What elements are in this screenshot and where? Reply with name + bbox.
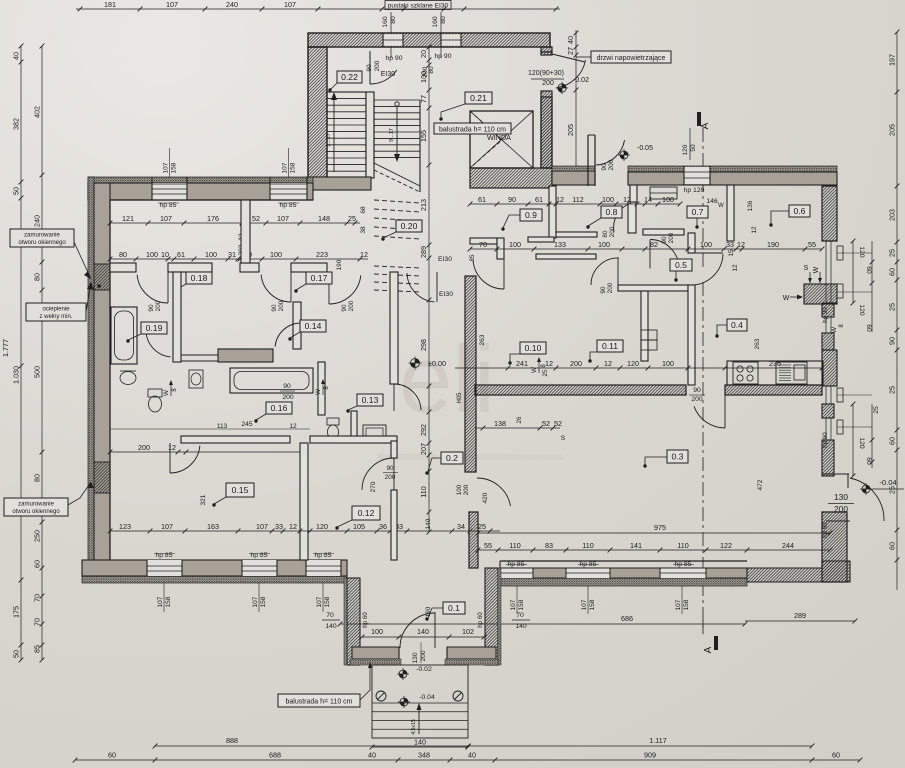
- svg-text:70: 70: [326, 612, 334, 619]
- svg-text:12: 12: [360, 250, 368, 259]
- svg-text:348: 348: [418, 751, 430, 760]
- svg-text:1.117: 1.117: [649, 736, 666, 745]
- svg-text:zamurowanie: zamurowanie: [24, 233, 60, 239]
- svg-text:33: 33: [275, 522, 283, 531]
- svg-text:0.14: 0.14: [305, 321, 322, 331]
- svg-text:80: 80: [33, 273, 42, 281]
- svg-text:0.13: 0.13: [362, 395, 379, 405]
- svg-text:25: 25: [888, 486, 897, 494]
- svg-text:0.15: 0.15: [232, 485, 249, 495]
- svg-text:S: S: [804, 265, 809, 272]
- svg-text:60: 60: [108, 751, 116, 760]
- svg-text:158: 158: [165, 596, 172, 607]
- svg-text:200: 200: [463, 484, 470, 495]
- svg-text:0.16: 0.16: [271, 403, 288, 413]
- svg-text:W: W: [813, 266, 820, 273]
- svg-text:S: S: [561, 435, 566, 442]
- svg-text:0.9: 0.9: [525, 210, 537, 220]
- svg-text:90: 90: [386, 465, 394, 472]
- svg-text:hp 85: hp 85: [314, 552, 331, 559]
- svg-text:zamurowanie: zamurowanie: [18, 502, 54, 508]
- svg-text:hp 90: hp 90: [822, 307, 829, 323]
- svg-text:50: 50: [690, 144, 697, 152]
- svg-text:0.3: 0.3: [672, 452, 684, 462]
- svg-text:100: 100: [371, 627, 383, 636]
- svg-text:250: 250: [33, 530, 42, 542]
- svg-text:26: 26: [516, 416, 523, 423]
- svg-text:200: 200: [570, 359, 582, 368]
- svg-text:50: 50: [12, 650, 21, 658]
- svg-text:107: 107: [581, 599, 588, 610]
- svg-text:200: 200: [668, 232, 675, 243]
- svg-text:9...17: 9...17: [389, 128, 395, 142]
- svg-text:107: 107: [256, 522, 268, 531]
- svg-text:70: 70: [516, 612, 524, 619]
- svg-text:WINDA: WINDA: [487, 133, 511, 142]
- svg-text:±0.00: ±0.00: [428, 359, 446, 368]
- svg-text:200: 200: [607, 282, 614, 293]
- svg-text:200: 200: [542, 80, 554, 87]
- svg-text:130: 130: [834, 492, 848, 502]
- svg-text:158: 158: [260, 596, 267, 607]
- svg-text:190: 190: [767, 240, 779, 249]
- svg-text:33: 33: [726, 240, 734, 249]
- svg-text:123: 123: [119, 522, 131, 531]
- svg-text:EI30: EI30: [439, 291, 453, 298]
- svg-text:100: 100: [509, 240, 521, 249]
- svg-text:107: 107: [284, 0, 296, 9]
- svg-text:0.2: 0.2: [446, 453, 458, 463]
- svg-text:223: 223: [316, 250, 328, 259]
- svg-text:100: 100: [456, 484, 463, 495]
- svg-text:40: 40: [566, 36, 575, 44]
- svg-text:-0.02: -0.02: [573, 77, 589, 84]
- svg-text:0.22: 0.22: [341, 72, 358, 82]
- svg-text:107: 107: [157, 596, 164, 607]
- svg-text:289: 289: [419, 246, 428, 258]
- svg-text:60: 60: [865, 266, 872, 274]
- svg-text:100: 100: [270, 250, 282, 259]
- svg-text:200: 200: [155, 300, 162, 311]
- svg-text:-0.04: -0.04: [879, 478, 896, 487]
- svg-text:0.21: 0.21: [470, 93, 487, 103]
- svg-text:25: 25: [888, 303, 897, 311]
- svg-text:0.1: 0.1: [448, 603, 460, 613]
- svg-text:70: 70: [33, 594, 42, 602]
- svg-text:50: 50: [12, 187, 21, 195]
- svg-text:drzwi napowietrzające: drzwi napowietrzające: [597, 55, 666, 62]
- svg-text:60: 60: [888, 268, 897, 276]
- svg-text:W: W: [718, 203, 724, 209]
- svg-text:100: 100: [662, 359, 674, 368]
- svg-text:190: 190: [425, 606, 432, 617]
- svg-text:H05: H05: [457, 392, 463, 404]
- svg-text:20: 20: [419, 50, 428, 58]
- svg-text:61: 61: [177, 250, 185, 259]
- svg-text:121: 121: [122, 214, 134, 223]
- svg-text:12: 12: [623, 195, 631, 204]
- svg-text:60: 60: [865, 324, 872, 332]
- svg-text:136: 136: [747, 200, 754, 211]
- svg-text:107: 107: [161, 522, 173, 531]
- svg-text:200: 200: [691, 396, 703, 403]
- svg-text:1.777: 1.777: [1, 339, 10, 357]
- svg-text:0.8: 0.8: [606, 207, 618, 217]
- svg-text:z wełny min.: z wełny min.: [39, 314, 72, 320]
- svg-text:EI30: EI30: [438, 256, 452, 263]
- svg-text:A: A: [700, 122, 711, 129]
- svg-text:60: 60: [888, 437, 897, 445]
- svg-text:68: 68: [360, 206, 367, 214]
- svg-text:25: 25: [888, 249, 897, 257]
- svg-text:90: 90: [661, 236, 668, 244]
- svg-text:205: 205: [888, 124, 897, 136]
- svg-text:107: 107: [316, 596, 323, 607]
- svg-text:120: 120: [858, 246, 865, 258]
- svg-text:40: 40: [368, 751, 376, 760]
- svg-text:hp 90: hp 90: [385, 55, 402, 62]
- svg-text:200: 200: [609, 226, 616, 237]
- svg-text:hp 85: hp 85: [155, 552, 172, 559]
- svg-text:15: 15: [728, 249, 735, 257]
- svg-text:70: 70: [479, 240, 487, 249]
- svg-text:140: 140: [417, 627, 429, 636]
- svg-text:85: 85: [33, 645, 42, 653]
- svg-text:60: 60: [888, 542, 897, 550]
- svg-text:W: W: [831, 326, 838, 333]
- svg-text:263: 263: [479, 334, 486, 345]
- svg-text:90: 90: [600, 286, 607, 294]
- svg-text:107: 107: [282, 162, 289, 173]
- svg-text:158: 158: [518, 599, 525, 610]
- svg-text:190: 190: [336, 259, 343, 270]
- svg-text:12: 12: [737, 240, 745, 249]
- svg-text:12: 12: [604, 359, 612, 368]
- svg-text:12: 12: [732, 264, 739, 272]
- svg-text:140: 140: [425, 518, 432, 529]
- svg-text:236: 236: [769, 359, 781, 368]
- svg-text:107: 107: [510, 599, 517, 610]
- svg-text:pustaki szklane EI30: pustaki szklane EI30: [388, 3, 449, 10]
- svg-text:0.5: 0.5: [675, 260, 687, 270]
- svg-text:12: 12: [751, 226, 758, 234]
- svg-text:0.18: 0.18: [191, 273, 208, 283]
- svg-text:120: 120: [316, 522, 328, 531]
- svg-text:40: 40: [12, 52, 21, 60]
- svg-text:205: 205: [566, 124, 575, 136]
- svg-text:240: 240: [33, 215, 42, 227]
- svg-text:200: 200: [278, 300, 285, 311]
- svg-text:0.7: 0.7: [692, 207, 704, 217]
- svg-text:298: 298: [419, 339, 428, 351]
- svg-text:472: 472: [757, 479, 764, 490]
- svg-text:909: 909: [644, 751, 656, 760]
- svg-text:31: 31: [228, 250, 236, 259]
- svg-text:1...17: 1...17: [326, 133, 332, 147]
- svg-text:158: 158: [324, 596, 331, 607]
- svg-text:140: 140: [515, 623, 527, 630]
- svg-text:155: 155: [419, 130, 428, 142]
- svg-text:200: 200: [138, 443, 150, 452]
- svg-text:107: 107: [252, 596, 259, 607]
- svg-text:100: 100: [146, 250, 158, 259]
- svg-text:130: 130: [412, 652, 419, 663]
- svg-text:197: 197: [888, 54, 897, 66]
- svg-text:90: 90: [148, 304, 155, 312]
- svg-text:158: 158: [589, 599, 596, 610]
- svg-text:420: 420: [482, 492, 489, 503]
- svg-text:100: 100: [419, 71, 428, 83]
- svg-text:140: 140: [325, 623, 337, 630]
- svg-text:292: 292: [419, 424, 428, 436]
- svg-text:244: 244: [782, 541, 794, 550]
- svg-text:245: 245: [241, 421, 253, 428]
- svg-text:-0.05: -0.05: [637, 145, 653, 152]
- svg-text:120: 120: [682, 144, 689, 155]
- svg-text:25: 25: [348, 214, 356, 223]
- svg-text:83: 83: [545, 541, 553, 550]
- svg-text:36: 36: [379, 522, 387, 531]
- svg-text:85: 85: [469, 254, 476, 262]
- svg-text:90: 90: [888, 337, 897, 345]
- svg-text:hp 90: hp 90: [434, 53, 451, 60]
- svg-text:-0.02: -0.02: [416, 666, 432, 673]
- svg-text:107: 107: [675, 599, 682, 610]
- svg-text:90: 90: [508, 195, 516, 204]
- svg-text:102: 102: [462, 627, 474, 636]
- svg-text:200: 200: [348, 300, 355, 311]
- svg-text:90: 90: [271, 304, 278, 312]
- svg-text:90: 90: [601, 163, 608, 171]
- svg-text:90: 90: [341, 304, 348, 312]
- svg-text:W: W: [163, 389, 170, 396]
- svg-text:100: 100: [602, 195, 614, 204]
- svg-text:402: 402: [33, 106, 42, 118]
- svg-text:203: 203: [888, 209, 897, 221]
- svg-text:158: 158: [683, 599, 690, 610]
- svg-text:122: 122: [720, 541, 732, 550]
- svg-text:60: 60: [33, 560, 42, 568]
- svg-text:14: 14: [644, 195, 652, 204]
- svg-text:100: 100: [700, 240, 712, 249]
- svg-text:25: 25: [888, 386, 897, 394]
- svg-text:70: 70: [33, 618, 42, 626]
- svg-text:175: 175: [12, 606, 21, 618]
- svg-text:90: 90: [693, 387, 701, 394]
- svg-text:688: 688: [269, 751, 281, 760]
- svg-text:A: A: [703, 646, 714, 653]
- svg-text:110: 110: [582, 541, 593, 550]
- svg-text:146: 146: [706, 198, 718, 205]
- svg-text:W: W: [531, 366, 538, 373]
- svg-text:120: 120: [858, 304, 865, 316]
- svg-text:148: 148: [318, 214, 330, 223]
- svg-text:1.030: 1.030: [12, 366, 21, 384]
- svg-text:888: 888: [226, 736, 238, 745]
- svg-text:382: 382: [12, 118, 21, 130]
- svg-text:270: 270: [370, 481, 377, 492]
- svg-text:52: 52: [542, 419, 550, 428]
- svg-text:12: 12: [289, 522, 297, 531]
- svg-text:158: 158: [171, 162, 178, 173]
- svg-text:W: W: [315, 388, 322, 395]
- svg-text:133: 133: [554, 240, 566, 249]
- svg-text:240: 240: [226, 0, 238, 9]
- svg-text:25: 25: [542, 369, 549, 376]
- svg-text:200: 200: [282, 394, 294, 401]
- svg-text:55: 55: [484, 541, 492, 550]
- svg-text:balustrada h= 110 cm: balustrada h= 110 cm: [286, 699, 353, 706]
- svg-text:25: 25: [873, 406, 880, 414]
- svg-text:12: 12: [556, 195, 564, 204]
- svg-text:12: 12: [545, 359, 553, 368]
- svg-text:112: 112: [572, 195, 583, 204]
- svg-text:82: 82: [650, 240, 658, 249]
- svg-text:otworu okiennego: otworu okiennego: [18, 240, 66, 246]
- svg-text:4,5x15: 4,5x15: [411, 719, 417, 735]
- svg-text:60: 60: [865, 457, 872, 465]
- svg-text:975: 975: [654, 523, 666, 532]
- svg-text:141: 141: [630, 541, 642, 550]
- svg-text:27: 27: [566, 47, 575, 55]
- svg-text:52: 52: [252, 214, 260, 223]
- svg-text:hp 60: hp 60: [477, 612, 484, 628]
- svg-text:500: 500: [33, 366, 42, 378]
- svg-text:12: 12: [168, 443, 176, 452]
- svg-text:263: 263: [754, 338, 761, 349]
- svg-text:107: 107: [163, 162, 170, 173]
- svg-text:321: 321: [200, 494, 207, 505]
- svg-text:0.11: 0.11: [602, 341, 618, 351]
- svg-text:0.19: 0.19: [146, 323, 163, 333]
- svg-text:61: 61: [535, 195, 543, 204]
- svg-text:158: 158: [290, 162, 297, 173]
- svg-text:38: 38: [360, 226, 367, 234]
- svg-text:200: 200: [374, 60, 381, 71]
- svg-text:0.17: 0.17: [311, 273, 328, 283]
- svg-text:EI30: EI30: [381, 71, 396, 78]
- svg-text:110: 110: [677, 541, 688, 550]
- svg-text:105: 105: [353, 522, 365, 531]
- svg-text:0.4: 0.4: [731, 320, 743, 330]
- svg-text:138: 138: [494, 419, 506, 428]
- svg-text:55: 55: [808, 240, 816, 249]
- svg-text:100: 100: [598, 240, 610, 249]
- svg-text:otworu okiennego: otworu okiennego: [12, 509, 60, 515]
- svg-text:W: W: [783, 295, 790, 302]
- svg-text:90: 90: [283, 383, 291, 390]
- svg-text:hp 90: hp 90: [822, 432, 829, 448]
- svg-text:hp 85: hp 85: [250, 552, 267, 559]
- svg-text:hp 120: hp 120: [684, 187, 705, 194]
- svg-text:200: 200: [608, 159, 615, 170]
- svg-text:176: 176: [207, 214, 219, 223]
- svg-text:200: 200: [385, 474, 396, 481]
- svg-text:77: 77: [419, 95, 428, 103]
- svg-text:160: 160: [432, 16, 439, 28]
- svg-text:0.6: 0.6: [794, 206, 806, 216]
- svg-text:120: 120: [858, 437, 865, 449]
- svg-text:213: 213: [419, 199, 428, 211]
- svg-text:ocieplenie: ocieplenie: [42, 307, 70, 313]
- svg-text:80: 80: [119, 250, 127, 259]
- svg-text:0.20: 0.20: [401, 221, 418, 231]
- svg-text:52: 52: [554, 419, 562, 428]
- svg-text:10: 10: [161, 250, 169, 259]
- svg-text:241: 241: [516, 359, 528, 368]
- svg-text:289: 289: [794, 611, 806, 620]
- svg-text:140: 140: [414, 738, 426, 747]
- svg-text:120(90+30): 120(90+30): [528, 70, 564, 77]
- svg-text:34: 34: [457, 522, 465, 531]
- svg-text:107: 107: [166, 0, 178, 9]
- svg-text:100: 100: [662, 195, 674, 204]
- svg-text:107: 107: [160, 214, 172, 223]
- svg-text:207: 207: [419, 443, 428, 455]
- svg-text:60: 60: [832, 751, 840, 760]
- svg-text:163: 163: [207, 522, 219, 531]
- svg-text:-0.04: -0.04: [419, 694, 435, 701]
- svg-text:160: 160: [382, 16, 389, 28]
- svg-text:181: 181: [104, 0, 116, 9]
- svg-text:40: 40: [468, 751, 476, 760]
- svg-text:107: 107: [277, 214, 289, 223]
- svg-text:hp 60: hp 60: [362, 612, 369, 628]
- svg-text:90: 90: [366, 64, 373, 72]
- svg-text:120: 120: [627, 359, 639, 368]
- svg-text:686: 686: [621, 614, 633, 623]
- svg-text:25: 25: [478, 522, 486, 531]
- svg-text:0.10: 0.10: [525, 343, 542, 353]
- svg-text:110: 110: [509, 541, 520, 550]
- svg-text:0.12: 0.12: [358, 508, 375, 518]
- svg-text:80: 80: [33, 474, 42, 482]
- svg-text:61: 61: [478, 195, 486, 204]
- svg-text:80: 80: [602, 230, 609, 238]
- svg-text:100: 100: [205, 250, 217, 259]
- svg-text:110: 110: [419, 486, 428, 497]
